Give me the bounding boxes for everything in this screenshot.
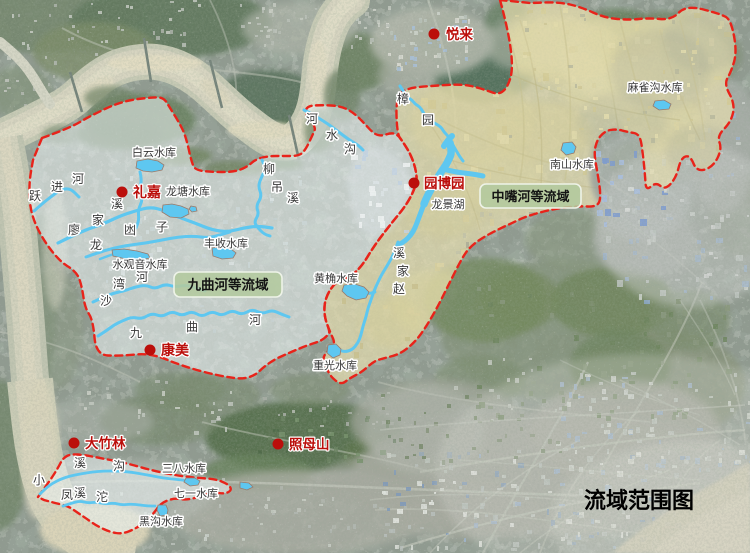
svg-text:重光水库: 重光水库 xyxy=(313,358,357,372)
svg-text:大竹林: 大竹林 xyxy=(85,435,126,451)
svg-text:流域范围图: 流域范围图 xyxy=(584,488,694,513)
svg-text:丰收水库: 丰收水库 xyxy=(204,236,248,250)
svg-text:柳: 柳 xyxy=(263,162,275,176)
svg-text:湾: 湾 xyxy=(113,276,125,291)
svg-text:悦来: 悦来 xyxy=(446,26,473,42)
svg-text:黄桷水库: 黄桷水库 xyxy=(314,271,358,285)
svg-text:凤: 凤 xyxy=(61,488,73,502)
svg-text:河: 河 xyxy=(249,313,261,327)
svg-text:溪: 溪 xyxy=(74,456,86,470)
svg-text:九: 九 xyxy=(130,326,142,340)
svg-text:凼: 凼 xyxy=(124,223,136,237)
svg-text:河: 河 xyxy=(72,172,84,186)
svg-text:照母山: 照母山 xyxy=(289,437,330,452)
svg-text:南山水库: 南山水库 xyxy=(550,158,594,171)
svg-text:溪: 溪 xyxy=(393,246,405,260)
svg-text:小: 小 xyxy=(33,473,45,487)
svg-text:子: 子 xyxy=(156,220,168,234)
svg-text:沟: 沟 xyxy=(113,459,125,473)
svg-text:水观音水库: 水观音水库 xyxy=(113,257,168,271)
svg-text:黑沟水库: 黑沟水库 xyxy=(139,515,183,528)
svg-text:龙景湖: 龙景湖 xyxy=(432,198,465,211)
svg-text:九曲河等流域: 九曲河等流域 xyxy=(187,277,269,293)
svg-text:七一水库: 七一水库 xyxy=(174,487,218,500)
svg-text:中嘴河等流域: 中嘴河等流域 xyxy=(491,189,569,204)
svg-text:溪: 溪 xyxy=(74,486,86,500)
svg-text:溪: 溪 xyxy=(111,197,123,211)
svg-text:沙: 沙 xyxy=(100,294,112,308)
svg-text:赵: 赵 xyxy=(393,282,405,296)
svg-text:曲: 曲 xyxy=(186,320,198,334)
svg-text:吊: 吊 xyxy=(271,180,283,194)
svg-text:龙: 龙 xyxy=(90,238,102,252)
svg-text:家: 家 xyxy=(92,212,104,227)
svg-text:廖: 廖 xyxy=(68,222,80,237)
svg-text:康美: 康美 xyxy=(161,342,190,358)
svg-text:麻雀沟水库: 麻雀沟水库 xyxy=(628,80,683,94)
svg-text:园: 园 xyxy=(422,113,434,127)
svg-text:河: 河 xyxy=(306,112,318,126)
svg-text:樟: 樟 xyxy=(397,91,409,106)
svg-text:沱: 沱 xyxy=(96,489,108,504)
svg-text:礼嘉: 礼嘉 xyxy=(133,184,161,200)
svg-text:溪: 溪 xyxy=(287,191,299,205)
svg-text:沟: 沟 xyxy=(344,142,356,156)
svg-text:水: 水 xyxy=(326,128,338,142)
svg-text:跃: 跃 xyxy=(29,189,41,203)
svg-text:园博园: 园博园 xyxy=(424,175,465,191)
svg-text:河: 河 xyxy=(136,270,148,284)
svg-text:龙塘水库: 龙塘水库 xyxy=(166,184,210,198)
svg-text:家: 家 xyxy=(397,263,409,278)
svg-text:三八水库: 三八水库 xyxy=(162,462,206,475)
svg-text:进: 进 xyxy=(51,180,63,194)
svg-text:白云水库: 白云水库 xyxy=(132,145,176,159)
